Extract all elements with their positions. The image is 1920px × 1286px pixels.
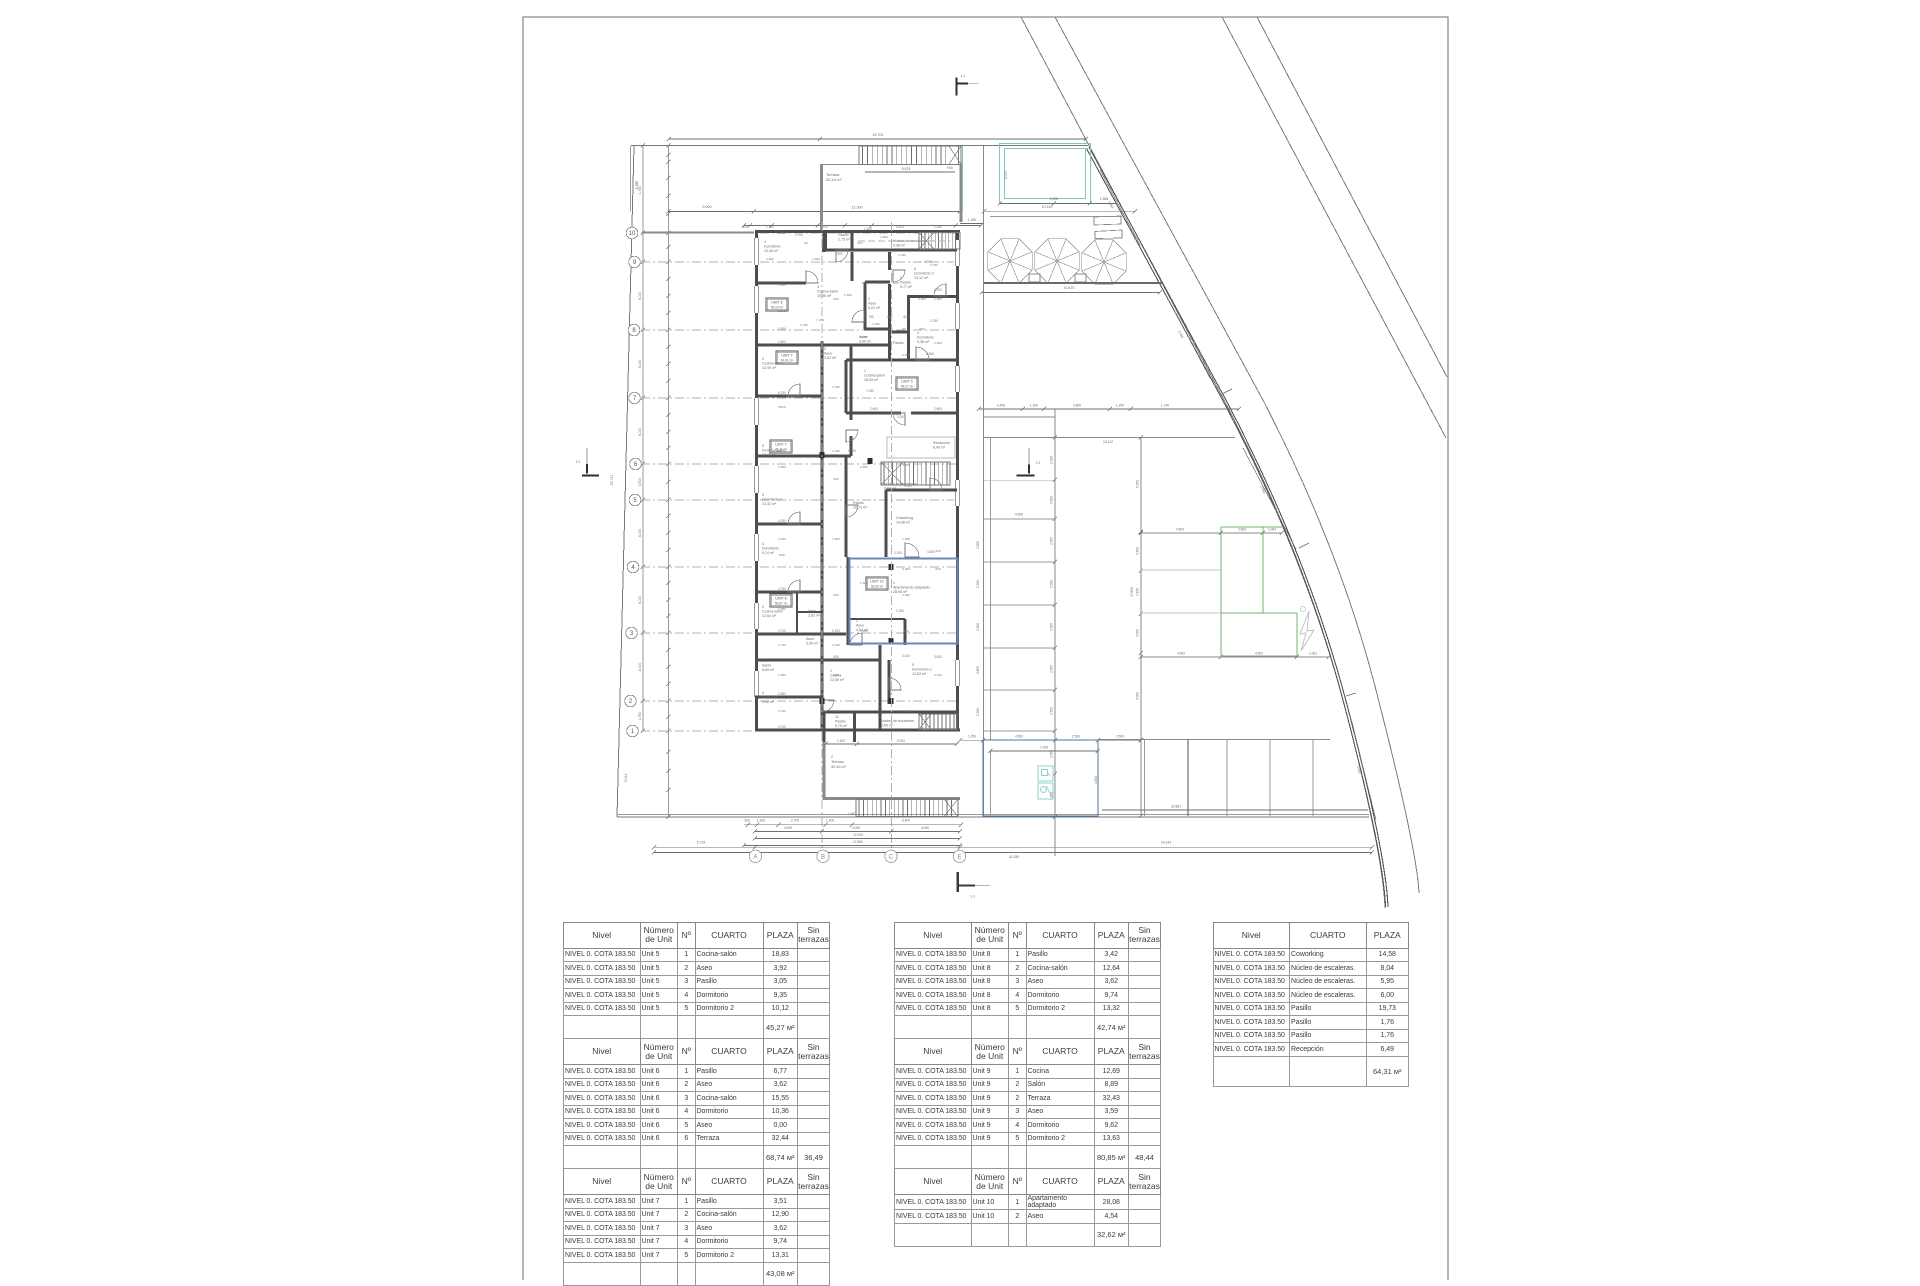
svg-text:959.6: 959.6 xyxy=(778,405,786,409)
svg-text:4.500: 4.500 xyxy=(1255,652,1263,656)
svg-text:900: 900 xyxy=(833,593,838,597)
svg-text:4.450: 4.450 xyxy=(904,484,912,488)
svg-text:1.400: 1.400 xyxy=(837,739,845,743)
svg-text:3,00 m²: 3,00 m² xyxy=(859,340,872,344)
svg-text:B: B xyxy=(821,854,825,861)
svg-text:2.200: 2.200 xyxy=(897,415,905,419)
svg-text:1.250: 1.250 xyxy=(934,225,942,229)
svg-text:2.600: 2.600 xyxy=(902,353,910,357)
svg-text:4.500: 4.500 xyxy=(1015,735,1023,739)
svg-text:1.565: 1.565 xyxy=(902,709,910,713)
svg-text:12.300: 12.300 xyxy=(852,206,863,210)
svg-text:1-1: 1-1 xyxy=(961,74,966,78)
svg-text:14,58 m²: 14,58 m² xyxy=(896,521,911,525)
svg-text:3.466: 3.466 xyxy=(1177,330,1184,339)
svg-text:2.600: 2.600 xyxy=(934,341,942,345)
svg-text:2.190: 2.190 xyxy=(832,629,840,633)
svg-text:3.760: 3.760 xyxy=(778,231,786,235)
svg-text:2.720: 2.720 xyxy=(778,643,786,647)
svg-text:5,08 m²: 5,08 m² xyxy=(893,244,906,248)
svg-text:1.300: 1.300 xyxy=(757,819,765,823)
svg-text:Coworking: Coworking xyxy=(896,516,913,520)
svg-text:24.143: 24.143 xyxy=(1161,841,1171,845)
svg-text:6.986: 6.986 xyxy=(635,181,639,190)
svg-text:900: 900 xyxy=(947,166,953,170)
svg-text:5: 5 xyxy=(914,267,916,271)
svg-text:13,12 m²: 13,12 m² xyxy=(914,276,929,280)
svg-text:5,77 m²: 5,77 m² xyxy=(900,285,913,289)
svg-text:9,62 m²: 9,62 m² xyxy=(762,700,775,704)
svg-text:1.054: 1.054 xyxy=(1268,528,1276,532)
svg-text:600: 600 xyxy=(833,297,838,301)
svg-text:Pasillo: Pasillo xyxy=(838,233,849,237)
svg-text:300: 300 xyxy=(744,819,750,823)
svg-text:600: 600 xyxy=(893,281,898,285)
svg-text:1.250: 1.250 xyxy=(968,735,976,739)
svg-text:6.750: 6.750 xyxy=(800,323,808,327)
svg-text:7.250: 7.250 xyxy=(866,389,874,393)
svg-text:4.500: 4.500 xyxy=(1015,513,1023,517)
svg-text:Apartamento adaptado: Apartamento adaptado xyxy=(893,586,930,590)
svg-text:2.500: 2.500 xyxy=(1072,735,1080,739)
svg-text:7.000: 7.000 xyxy=(1040,746,1048,750)
svg-text:2.500: 2.500 xyxy=(1050,665,1054,673)
svg-text:1.366: 1.366 xyxy=(902,537,910,541)
svg-text:2.850: 2.850 xyxy=(778,673,786,677)
svg-text:25.741: 25.741 xyxy=(610,475,614,486)
svg-text:UNIT 8: UNIT 8 xyxy=(775,596,786,600)
svg-text:3.500: 3.500 xyxy=(638,478,642,487)
svg-text:3.750: 3.750 xyxy=(930,319,938,323)
svg-text:2.500: 2.500 xyxy=(976,580,980,588)
svg-text:2.800: 2.800 xyxy=(934,407,942,411)
svg-text:Núcleo de escaleras,: Núcleo de escaleras, xyxy=(884,482,918,486)
svg-text:4.000: 4.000 xyxy=(638,663,642,672)
svg-text:1.300: 1.300 xyxy=(766,225,774,229)
svg-text:45,27 m²: 45,27 m² xyxy=(901,385,914,389)
svg-text:2.800: 2.800 xyxy=(778,327,786,331)
svg-text:1-1: 1-1 xyxy=(970,895,975,899)
svg-text:300: 300 xyxy=(742,225,748,229)
svg-text:12,64 m²: 12,64 m² xyxy=(762,614,777,618)
svg-text:UNIT 6: UNIT 6 xyxy=(771,300,782,304)
svg-text:Recepción: Recepción xyxy=(933,441,950,445)
svg-text:1.756: 1.756 xyxy=(922,247,930,251)
svg-text:56,87 m²: 56,87 m² xyxy=(775,602,788,606)
svg-text:2.800: 2.800 xyxy=(778,340,786,344)
svg-text:2.850: 2.850 xyxy=(976,666,980,674)
svg-text:5: 5 xyxy=(762,493,764,497)
svg-text:90: 90 xyxy=(804,241,808,245)
svg-text:7.250: 7.250 xyxy=(816,318,824,322)
svg-text:2: 2 xyxy=(762,357,764,361)
svg-text:2.500: 2.500 xyxy=(1050,580,1054,588)
svg-text:1.450: 1.450 xyxy=(902,463,910,467)
svg-text:11: 11 xyxy=(835,715,839,719)
svg-text:500: 500 xyxy=(935,549,940,553)
svg-text:5.000: 5.000 xyxy=(703,205,712,209)
svg-text:4: 4 xyxy=(764,240,766,244)
svg-text:1.300: 1.300 xyxy=(848,449,856,453)
svg-text:10.670: 10.670 xyxy=(1064,286,1075,290)
svg-text:5.014: 5.014 xyxy=(624,774,628,782)
svg-text:2.800: 2.800 xyxy=(766,257,774,261)
svg-text:3.750: 3.750 xyxy=(930,263,938,267)
svg-text:4.500: 4.500 xyxy=(1177,652,1185,656)
svg-text:4.000: 4.000 xyxy=(784,826,792,830)
svg-text:3: 3 xyxy=(762,659,764,663)
svg-text:6,00 m²: 6,00 m² xyxy=(881,724,894,728)
svg-text:3.500: 3.500 xyxy=(1050,496,1054,504)
svg-text:1.800: 1.800 xyxy=(880,235,888,239)
svg-text:2.900: 2.900 xyxy=(934,297,942,301)
svg-text:42.159: 42.159 xyxy=(1009,855,1019,859)
svg-text:1.081: 1.081 xyxy=(1309,652,1317,656)
svg-text:1.300: 1.300 xyxy=(832,385,840,389)
svg-text:2.600: 2.600 xyxy=(870,407,878,411)
svg-text:2: 2 xyxy=(762,605,764,609)
svg-text:2: 2 xyxy=(868,297,870,301)
svg-text:3.300: 3.300 xyxy=(1136,547,1140,555)
svg-text:Dormitorio: Dormitorio xyxy=(917,336,934,340)
svg-text:UNIT 5: UNIT 5 xyxy=(901,379,912,383)
svg-text:2.700: 2.700 xyxy=(791,819,799,823)
svg-text:2.500: 2.500 xyxy=(1238,528,1246,532)
svg-text:2.700: 2.700 xyxy=(820,225,828,229)
svg-text:Salón: Salón xyxy=(762,664,771,668)
svg-text:2.900: 2.900 xyxy=(934,288,942,292)
svg-text:800: 800 xyxy=(833,673,838,677)
svg-text:1.100: 1.100 xyxy=(832,709,840,713)
svg-text:3.700: 3.700 xyxy=(778,725,786,729)
svg-text:6,49 m²: 6,49 m² xyxy=(933,446,946,450)
svg-text:1: 1 xyxy=(893,581,895,585)
svg-text:Pasillo: Pasillo xyxy=(835,720,846,724)
svg-text:12,90 m²: 12,90 m² xyxy=(762,366,777,370)
svg-text:5.715: 5.715 xyxy=(697,841,706,845)
svg-text:Núcleo de escaleras,: Núcleo de escaleras, xyxy=(881,719,915,723)
svg-text:1.800: 1.800 xyxy=(812,257,820,261)
svg-text:4.490: 4.490 xyxy=(997,404,1005,408)
svg-text:3,62 m²: 3,62 m² xyxy=(808,614,821,618)
svg-text:1,75 m²: 1,75 m² xyxy=(838,238,851,242)
svg-text:C: C xyxy=(889,854,894,861)
svg-text:13,63 m²: 13,63 m² xyxy=(912,672,927,676)
svg-text:2.390: 2.390 xyxy=(896,609,904,613)
svg-text:17.850: 17.850 xyxy=(1130,587,1134,597)
svg-text:2-2: 2-2 xyxy=(1036,461,1041,465)
svg-text:Cocina-salón: Cocina-salón xyxy=(817,290,838,294)
svg-text:600: 600 xyxy=(903,315,909,319)
svg-text:900: 900 xyxy=(837,252,843,256)
svg-text:12.300: 12.300 xyxy=(853,840,863,844)
svg-text:2.500: 2.500 xyxy=(976,708,980,716)
svg-text:5: 5 xyxy=(762,444,764,448)
svg-text:5.000: 5.000 xyxy=(1136,692,1140,700)
svg-text:Dormitorio: Dormitorio xyxy=(762,547,779,551)
svg-text:3.760: 3.760 xyxy=(795,233,803,237)
svg-text:6.400: 6.400 xyxy=(902,819,910,823)
svg-text:Pasillo: Pasillo xyxy=(893,341,904,345)
svg-text:2.390: 2.390 xyxy=(902,593,910,597)
svg-text:15,55 m²: 15,55 m² xyxy=(817,294,832,298)
svg-text:9,36 m²: 9,36 m² xyxy=(917,340,930,344)
svg-text:1.300: 1.300 xyxy=(832,449,840,453)
svg-text:32,62 m²: 32,62 m² xyxy=(871,585,884,589)
svg-text:4.000: 4.000 xyxy=(852,826,860,830)
svg-text:3.750: 3.750 xyxy=(778,587,786,591)
svg-text:12,69 m²: 12,69 m² xyxy=(830,678,845,682)
svg-text:2.450: 2.450 xyxy=(860,629,868,633)
svg-text:1.868: 1.868 xyxy=(1107,200,1114,209)
svg-text:1.600: 1.600 xyxy=(864,227,872,231)
svg-text:22.881: 22.881 xyxy=(1171,805,1181,809)
svg-text:4.250: 4.250 xyxy=(778,449,786,453)
svg-text:2.850: 2.850 xyxy=(860,465,868,469)
svg-text:2.850: 2.850 xyxy=(778,692,786,696)
svg-text:4.250: 4.250 xyxy=(778,519,786,523)
svg-text:Aseo: Aseo xyxy=(856,624,864,628)
svg-text:Aseo: Aseo xyxy=(808,609,816,613)
svg-text:1.200: 1.200 xyxy=(1116,404,1124,408)
svg-text:1.200: 1.200 xyxy=(1030,404,1038,408)
svg-text:6.750: 6.750 xyxy=(778,391,786,395)
svg-text:2.500: 2.500 xyxy=(860,581,868,585)
svg-text:Aseo: Aseo xyxy=(868,302,876,306)
svg-text:2.500: 2.500 xyxy=(1050,537,1054,545)
svg-text:900: 900 xyxy=(833,477,838,481)
svg-text:50: 50 xyxy=(902,327,906,331)
svg-text:Cocina-salón: Cocina-salón xyxy=(864,374,885,378)
svg-text:3.983: 3.983 xyxy=(1356,765,1362,774)
svg-text:Pasillo: Pasillo xyxy=(853,501,864,505)
svg-text:1.250: 1.250 xyxy=(968,218,976,222)
svg-text:Dormitorio: Dormitorio xyxy=(764,245,781,249)
svg-text:5.000: 5.000 xyxy=(1050,197,1059,201)
svg-text:2.550: 2.550 xyxy=(778,465,786,469)
svg-text:1.740: 1.740 xyxy=(1161,404,1169,408)
svg-text:2.600: 2.600 xyxy=(926,352,934,356)
svg-text:5.350: 5.350 xyxy=(1136,480,1140,488)
svg-text:750: 750 xyxy=(861,281,866,285)
svg-text:800: 800 xyxy=(833,655,839,659)
svg-text:15.112: 15.112 xyxy=(1103,440,1113,444)
svg-text:3,62 m²: 3,62 m² xyxy=(824,356,837,360)
svg-text:4.800: 4.800 xyxy=(927,550,935,554)
svg-text:8,89 m²: 8,89 m² xyxy=(762,668,775,672)
svg-text:3.500: 3.500 xyxy=(1136,629,1140,637)
svg-text:Dormitorio 2: Dormitorio 2 xyxy=(912,668,932,672)
svg-text:3: 3 xyxy=(824,347,826,351)
svg-text:UNIT 7: UNIT 7 xyxy=(781,353,792,357)
svg-text:3.410: 3.410 xyxy=(902,654,910,658)
svg-text:2.500: 2.500 xyxy=(844,293,852,297)
svg-text:8.675: 8.675 xyxy=(902,167,911,171)
svg-text:3.150: 3.150 xyxy=(1136,588,1140,596)
svg-text:3.810: 3.810 xyxy=(934,655,942,659)
svg-text:E: E xyxy=(957,854,961,861)
svg-text:1.600: 1.600 xyxy=(848,812,856,816)
svg-text:4.250: 4.250 xyxy=(778,537,786,541)
svg-text:12.000: 12.000 xyxy=(853,833,863,837)
svg-text:2.720: 2.720 xyxy=(778,629,786,633)
svg-text:Dormitorio 2: Dormitorio 2 xyxy=(762,498,782,502)
svg-text:4.000: 4.000 xyxy=(638,596,642,605)
svg-text:6.400: 6.400 xyxy=(896,225,904,229)
svg-text:13,31 m²: 13,31 m² xyxy=(762,453,777,457)
svg-text:Terraza: Terraza xyxy=(831,760,845,764)
svg-text:850: 850 xyxy=(779,553,784,557)
svg-text:900: 900 xyxy=(857,241,862,245)
svg-text:6.300: 6.300 xyxy=(902,567,910,571)
svg-text:3.700: 3.700 xyxy=(778,709,786,713)
svg-text:4: 4 xyxy=(762,542,764,546)
svg-text:Aseo: Aseo xyxy=(824,352,832,356)
svg-text:2.500: 2.500 xyxy=(1050,707,1054,715)
svg-text:4.000: 4.000 xyxy=(638,529,642,538)
svg-text:10,36 m²: 10,36 m² xyxy=(764,249,779,253)
svg-text:9,14 m²: 9,14 m² xyxy=(762,551,775,555)
svg-text:3.000: 3.000 xyxy=(1004,171,1008,180)
svg-text:2.500: 2.500 xyxy=(976,541,980,549)
svg-text:5,02 m²: 5,02 m² xyxy=(868,306,881,310)
svg-text:3,59 m²: 3,59 m² xyxy=(806,642,819,646)
svg-text:4: 4 xyxy=(762,691,764,695)
svg-text:Aseo: Aseo xyxy=(806,637,814,641)
svg-text:6,04 m²: 6,04 m² xyxy=(884,487,897,491)
svg-text:1.400: 1.400 xyxy=(826,819,834,823)
svg-text:1.450: 1.450 xyxy=(872,322,880,326)
svg-text:2.450: 2.450 xyxy=(898,253,906,257)
svg-text:4.500: 4.500 xyxy=(1094,776,1098,784)
svg-text:800: 800 xyxy=(919,327,924,331)
svg-text:2.450: 2.450 xyxy=(860,335,868,339)
svg-text:2.500: 2.500 xyxy=(1116,735,1124,739)
svg-text:24.701: 24.701 xyxy=(873,133,884,137)
svg-text:4.000: 4.000 xyxy=(921,826,929,830)
svg-text:32,44 m²: 32,44 m² xyxy=(826,177,842,182)
svg-text:2.800: 2.800 xyxy=(778,283,786,287)
svg-text:10.110: 10.110 xyxy=(1042,205,1053,209)
svg-text:3.800: 3.800 xyxy=(1073,404,1081,408)
svg-text:1.750: 1.750 xyxy=(638,712,642,721)
svg-text:Dormitorio 2: Dormitorio 2 xyxy=(914,272,934,276)
svg-text:32,43 m²: 32,43 m² xyxy=(831,765,847,769)
svg-text:2.500: 2.500 xyxy=(976,623,980,631)
svg-text:10: 10 xyxy=(629,231,636,237)
svg-text:4.000: 4.000 xyxy=(638,428,642,437)
svg-text:1: 1 xyxy=(900,276,902,280)
svg-text:1: 1 xyxy=(864,369,866,373)
svg-text:10,73 m²: 10,73 m² xyxy=(853,506,868,510)
svg-text:2.500: 2.500 xyxy=(1050,623,1054,631)
svg-text:2-2: 2-2 xyxy=(576,460,581,464)
svg-text:2.550: 2.550 xyxy=(778,607,786,611)
svg-text:2.500: 2.500 xyxy=(1050,456,1054,464)
svg-text:5,75 m²: 5,75 m² xyxy=(835,724,848,728)
svg-text:800: 800 xyxy=(877,281,882,285)
svg-text:4: 4 xyxy=(917,331,919,335)
svg-text:UNIT 10: UNIT 10 xyxy=(870,579,883,583)
svg-text:2.900: 2.900 xyxy=(918,297,926,301)
svg-text:1.868: 1.868 xyxy=(1100,197,1109,201)
svg-text:2.300: 2.300 xyxy=(894,551,902,555)
svg-text:2: 2 xyxy=(831,755,833,759)
svg-text:1.565: 1.565 xyxy=(832,537,840,541)
svg-text:13,32 m²: 13,32 m² xyxy=(762,502,777,506)
svg-text:2: 2 xyxy=(856,619,858,623)
svg-text:3: 3 xyxy=(817,285,819,289)
svg-text:5: 5 xyxy=(912,663,914,667)
svg-text:18,93 m²: 18,93 m² xyxy=(864,378,879,382)
svg-text:2.190: 2.190 xyxy=(832,643,840,647)
svg-text:800: 800 xyxy=(887,315,893,319)
svg-text:900: 900 xyxy=(935,567,940,571)
svg-text:3.410: 3.410 xyxy=(934,673,942,677)
svg-text:Pasillo: Pasillo xyxy=(900,281,911,285)
svg-text:Dormitorio: Dormitorio xyxy=(762,696,779,700)
svg-text:4.500: 4.500 xyxy=(1176,528,1184,532)
svg-text:1: 1 xyxy=(830,669,832,673)
svg-text:4.000: 4.000 xyxy=(638,292,642,301)
svg-text:UNIT 7: UNIT 7 xyxy=(775,442,786,446)
svg-text:4.000: 4.000 xyxy=(638,360,642,369)
svg-text:8.000: 8.000 xyxy=(897,739,905,743)
svg-text:Cocina-salón: Cocina-salón xyxy=(762,362,783,366)
svg-text:559.2: 559.2 xyxy=(778,309,786,313)
svg-text:960: 960 xyxy=(903,629,908,633)
svg-text:750: 750 xyxy=(868,315,874,319)
